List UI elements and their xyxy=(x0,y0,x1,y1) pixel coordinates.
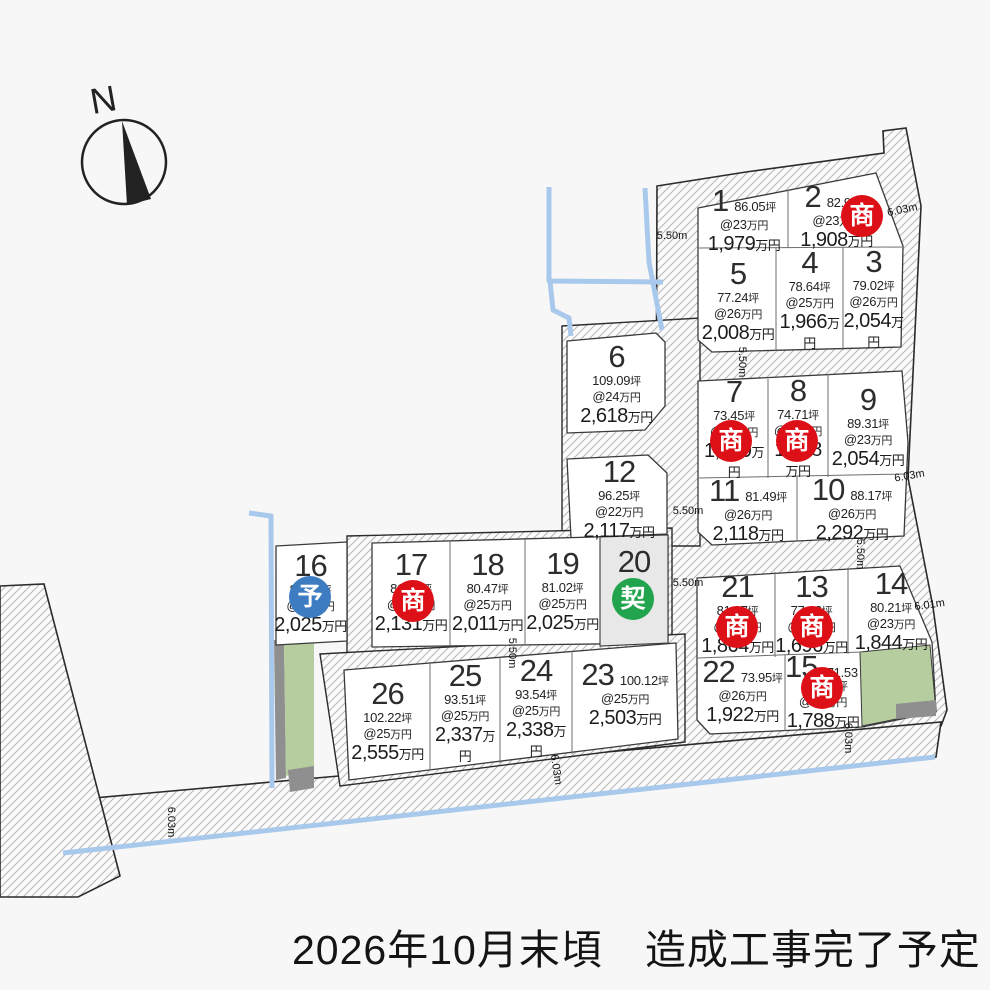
lot-price: 2,025万円 xyxy=(526,613,599,633)
lot-23[interactable]: 23100.12坪@25万円2,503万円 xyxy=(574,646,676,741)
lot-number: 22 xyxy=(702,656,734,687)
lot-area: 93.54坪 xyxy=(515,688,557,702)
lot-price: 2,292万円 xyxy=(816,523,889,543)
lot-price: 2,011万円 xyxy=(452,614,523,634)
lot-number: 5 xyxy=(730,258,746,289)
lot-area: 78.64坪 xyxy=(789,280,831,294)
lot-number: 7 xyxy=(726,376,742,407)
badge-negotiating: 商 xyxy=(801,667,843,709)
lot-rate: @25万円 xyxy=(463,598,511,612)
lot-21[interactable]: 2181.07坪@23万円1,864万円商 xyxy=(700,572,775,655)
lot-area: 96.25坪 xyxy=(598,489,640,503)
lot-13[interactable]: 1377.12坪@22万円1,696万円商 xyxy=(775,570,848,656)
lot-rate: @23万円 xyxy=(844,433,892,447)
lot-number: 3 xyxy=(865,246,881,277)
lot-area: 81.02坪 xyxy=(542,581,584,595)
lot-rate: @22万円 xyxy=(595,505,643,519)
lot-26[interactable]: 26102.22坪@25万円2,555万円 xyxy=(345,665,430,775)
lot-rate: @26万円 xyxy=(828,507,876,521)
site-plan: N 5.50m6.03m5.50m6.03m5.50m5.50m5.50m6.0… xyxy=(0,0,990,990)
lot-number: 8 xyxy=(790,375,806,406)
lot-12[interactable]: 1296.25坪@22万円2,117万円 xyxy=(570,458,668,538)
lot-area: 100.12坪 xyxy=(620,674,669,688)
lot-area: 102.22坪 xyxy=(363,711,412,725)
lot-area: 109.09坪 xyxy=(592,374,641,388)
badge-negotiating: 商 xyxy=(392,580,434,622)
lot-1[interactable]: 186.05坪@23万円1,979万円 xyxy=(700,190,788,248)
lot-rate: @25万円 xyxy=(512,704,560,718)
lot-7[interactable]: 773.45坪@23万円1,689万円商 xyxy=(700,380,768,477)
lot-price: 2,503万円 xyxy=(589,708,662,728)
lot-rate: @26万円 xyxy=(718,689,766,703)
lot-rate: @25万円 xyxy=(601,692,649,706)
lot-rate: @25万円 xyxy=(538,597,586,611)
lot-number: 25 xyxy=(449,660,481,691)
lot-6[interactable]: 6109.09坪@24万円2,618万円 xyxy=(569,337,664,430)
lot-rate: @24万円 xyxy=(592,390,640,404)
lot-price: 2,025万円 xyxy=(274,615,347,635)
lot-rate: @25万円 xyxy=(363,727,411,741)
lot-price: 2,618万円 xyxy=(580,406,653,426)
lot-18[interactable]: 1880.47坪@25万円2,011万円 xyxy=(450,542,525,640)
lot-rate: @23万円 xyxy=(867,617,915,631)
lot-price: 1,966万円 xyxy=(776,312,843,352)
lot-rate: @26万円 xyxy=(724,508,772,522)
lot-rate: @25万円 xyxy=(441,709,489,723)
badge-negotiating: 商 xyxy=(841,195,883,237)
lot-20[interactable]: 20契 xyxy=(600,538,668,648)
lot-3[interactable]: 379.02坪@26万円2,054万円 xyxy=(843,249,904,348)
lot-22[interactable]: 2273.95坪@26万円1,922万円 xyxy=(700,657,785,723)
badge-negotiating: 商 xyxy=(776,420,818,462)
lot-price: 1,788万円 xyxy=(787,711,860,731)
badge-negotiating: 商 xyxy=(716,606,758,648)
lots-layer: 186.05坪@23万円1,979万円282.96坪@23万円1,908万円商3… xyxy=(0,0,990,990)
lot-price: 2,337万円 xyxy=(430,725,500,765)
lot-price: 2,338万円 xyxy=(500,720,572,760)
lot-number: 23 xyxy=(581,659,613,690)
lot-number: 1 xyxy=(712,185,728,216)
caption: 2026年10月末頃 造成工事完了予定 xyxy=(292,916,981,976)
lot-number: 10 xyxy=(812,474,844,505)
lot-10[interactable]: 1088.17坪@26万円2,292万円 xyxy=(797,478,907,538)
lot-number: 14 xyxy=(875,568,907,599)
badge-negotiating: 商 xyxy=(710,420,752,462)
lot-24[interactable]: 2493.54坪@25万円2,338万円 xyxy=(500,655,572,760)
lot-price: 2,555万円 xyxy=(351,743,424,763)
lot-rate: @25万円 xyxy=(785,296,833,310)
lot-price: 2,054万円 xyxy=(832,449,905,469)
lot-5[interactable]: 577.24坪@26万円2,008万円 xyxy=(700,251,776,350)
badge-negotiating: 商 xyxy=(791,606,833,648)
lot-price: 1,844万円 xyxy=(855,633,928,653)
lot-number: 21 xyxy=(721,571,753,602)
lot-25[interactable]: 2593.51坪@25万円2,337万円 xyxy=(430,660,500,765)
lot-area: 80.47坪 xyxy=(467,582,509,596)
lot-9[interactable]: 989.31坪@23万円2,054万円 xyxy=(828,376,908,476)
lot-11[interactable]: 1181.49坪@26万円2,118万円 xyxy=(699,480,797,538)
lot-14[interactable]: 1480.21坪@23万円1,844万円 xyxy=(848,568,934,652)
lot-number: 9 xyxy=(860,384,876,415)
lot-4[interactable]: 478.64坪@25万円1,966万円 xyxy=(776,250,843,349)
lot-price: 1,922万円 xyxy=(706,705,779,725)
badge-reserved: 予 xyxy=(289,576,331,618)
lot-rate: @23万円 xyxy=(720,218,768,232)
lot-number: 20 xyxy=(618,546,650,577)
lot-area: 79.02坪 xyxy=(853,279,895,293)
lot-number: 24 xyxy=(520,655,552,686)
lot-2[interactable]: 282.96坪@23万円1,908万円商 xyxy=(788,184,885,246)
lot-number: 13 xyxy=(795,571,827,602)
lot-price: 2,054万円 xyxy=(843,311,904,351)
lot-number: 17 xyxy=(395,549,427,580)
lot-area: 93.51坪 xyxy=(444,693,486,707)
lot-17[interactable]: 1781.98坪@26万円2,131万円商 xyxy=(372,543,450,640)
lot-number: 18 xyxy=(471,549,503,580)
lot-area: 77.24坪 xyxy=(717,291,759,305)
lot-number: 6 xyxy=(608,341,624,372)
lot-rate: @26万円 xyxy=(849,295,897,309)
badge-contracted: 契 xyxy=(612,578,654,620)
lot-area: 88.17坪 xyxy=(850,489,892,503)
lot-number: 12 xyxy=(603,456,635,487)
lot-19[interactable]: 1981.02坪@25万円2,025万円 xyxy=(525,540,600,640)
lot-number: 4 xyxy=(801,247,817,278)
lot-number: 26 xyxy=(371,678,403,709)
lot-area: 81.49坪 xyxy=(745,490,787,504)
lot-price: 2,008万円 xyxy=(702,323,775,343)
lot-15[interactable]: 1571.53坪@25万円1,788万円商 xyxy=(785,656,861,726)
lot-area: 86.05坪 xyxy=(734,200,776,214)
lot-number: 19 xyxy=(546,548,578,579)
lot-8[interactable]: 874.71坪@21万円1,568万円商 xyxy=(768,378,828,477)
lot-area: 89.31坪 xyxy=(847,417,889,431)
lot-area: 73.95坪 xyxy=(741,671,783,685)
lot-price: 2,118万円 xyxy=(712,524,783,544)
lot-area: 80.21坪 xyxy=(870,601,912,615)
lot-16[interactable]: 1681.03坪@25万円2,025万円予 xyxy=(272,545,349,640)
lot-number: 11 xyxy=(709,475,739,506)
lot-number: 2 xyxy=(805,181,821,212)
lot-rate: @26万円 xyxy=(714,307,762,321)
